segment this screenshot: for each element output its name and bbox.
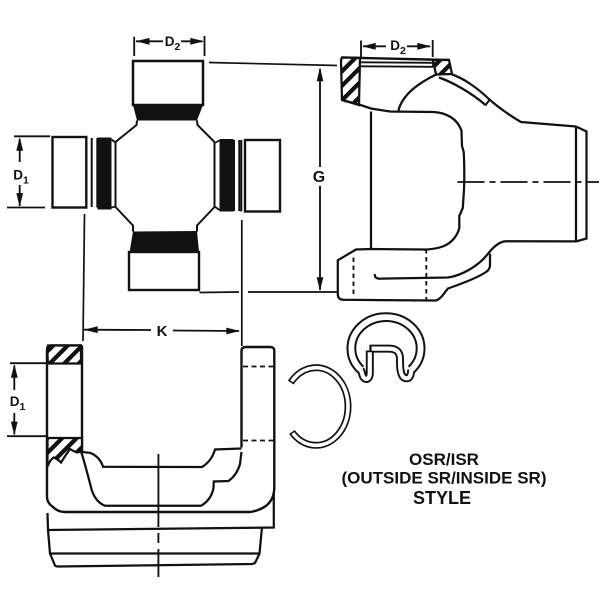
svg-text:D1: D1 [13, 168, 29, 187]
svg-text:G: G [313, 169, 325, 186]
svg-text:D2: D2 [390, 38, 406, 57]
svg-text:K: K [157, 323, 168, 340]
svg-text:(OUTSIDE SR/INSIDE SR): (OUTSIDE SR/INSIDE SR) [342, 469, 547, 488]
svg-text:OSR/ISR: OSR/ISR [409, 450, 479, 469]
svg-text:D1: D1 [10, 394, 26, 413]
svg-text:STYLE: STYLE [413, 488, 471, 508]
svg-text:D2: D2 [165, 34, 181, 53]
